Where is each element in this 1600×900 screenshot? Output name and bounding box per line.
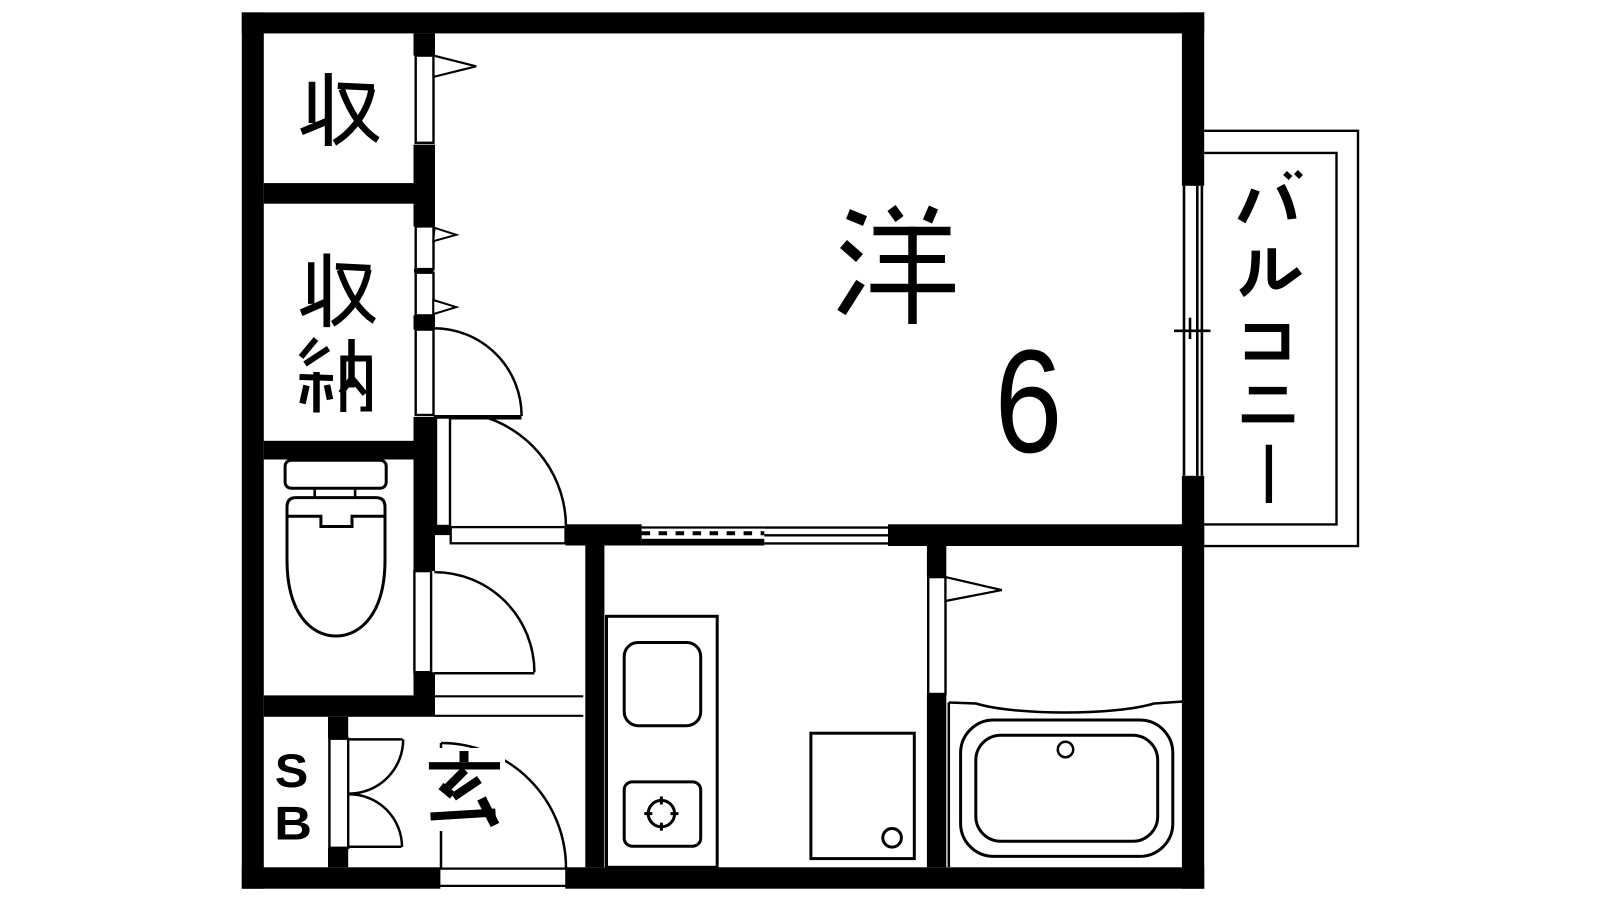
svg-text:S: S [275, 745, 309, 797]
svg-text:6: 6 [995, 319, 1063, 483]
svg-text:B: B [274, 797, 312, 850]
